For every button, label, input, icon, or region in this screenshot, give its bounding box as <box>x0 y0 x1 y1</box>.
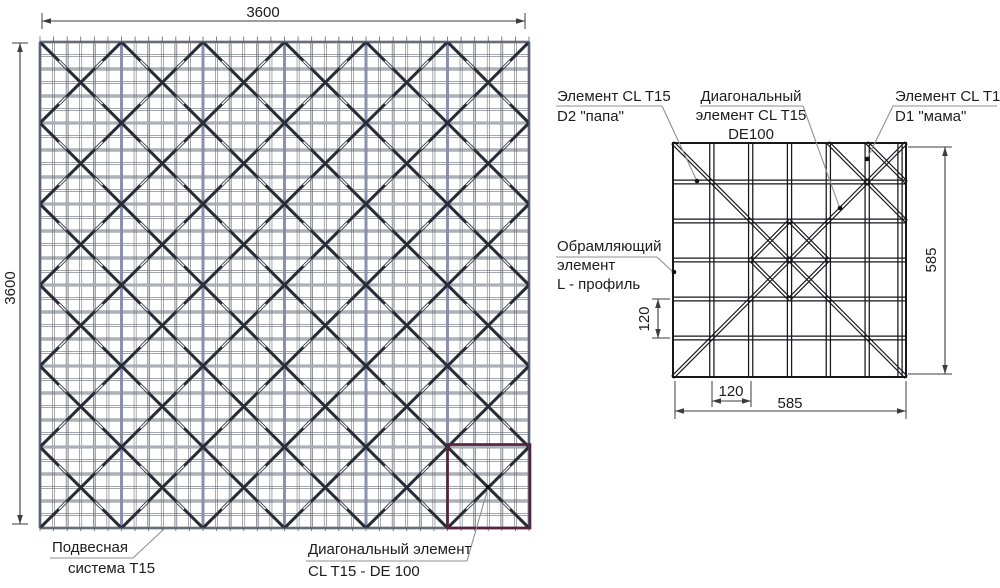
label-frame-element-line1: Обрамляющий <box>557 238 661 256</box>
dimension-detail-right-585: 585 <box>923 240 941 280</box>
label-suspension-system-line2: система Т15 <box>68 560 155 578</box>
dimension-detail-bottom-585: 585 <box>760 395 820 413</box>
dimension-detail-cell-120: 120 <box>706 383 756 401</box>
label-detail-diagonal-line2: элемент CL T15 <box>694 107 808 125</box>
drawing-sheet: 3600 3600 Подвесная система Т15 Диагонал… <box>0 0 1000 588</box>
label-frame-element-line2: элемент <box>557 257 615 275</box>
label-element-d1-line2: D1 "мама" <box>895 108 966 126</box>
label-frame-element-line3: L - профиль <box>557 276 640 294</box>
label-element-d2-line1: Элемент CL T15 <box>557 88 671 106</box>
label-diagonal-element-line1: Диагональный элемент <box>308 541 471 559</box>
label-detail-diagonal-line1: Диагональный <box>694 88 808 106</box>
dimension-left-3600: 3600 <box>2 265 20 311</box>
label-detail-diagonal-line3: DE100 <box>694 126 808 144</box>
dimension-detail-cell-left-120: 120 <box>636 299 654 339</box>
cad-linework <box>0 0 1000 588</box>
label-suspension-system-line1: Подвесная <box>52 539 128 557</box>
label-diagonal-element-line2: CL T15 - DE 100 <box>308 563 420 581</box>
label-element-d2-line2: D2 "папа" <box>557 108 624 126</box>
label-element-d1-line1: Элемент CL T15 <box>895 88 1000 106</box>
dimension-top-3600: 3600 <box>233 4 293 22</box>
